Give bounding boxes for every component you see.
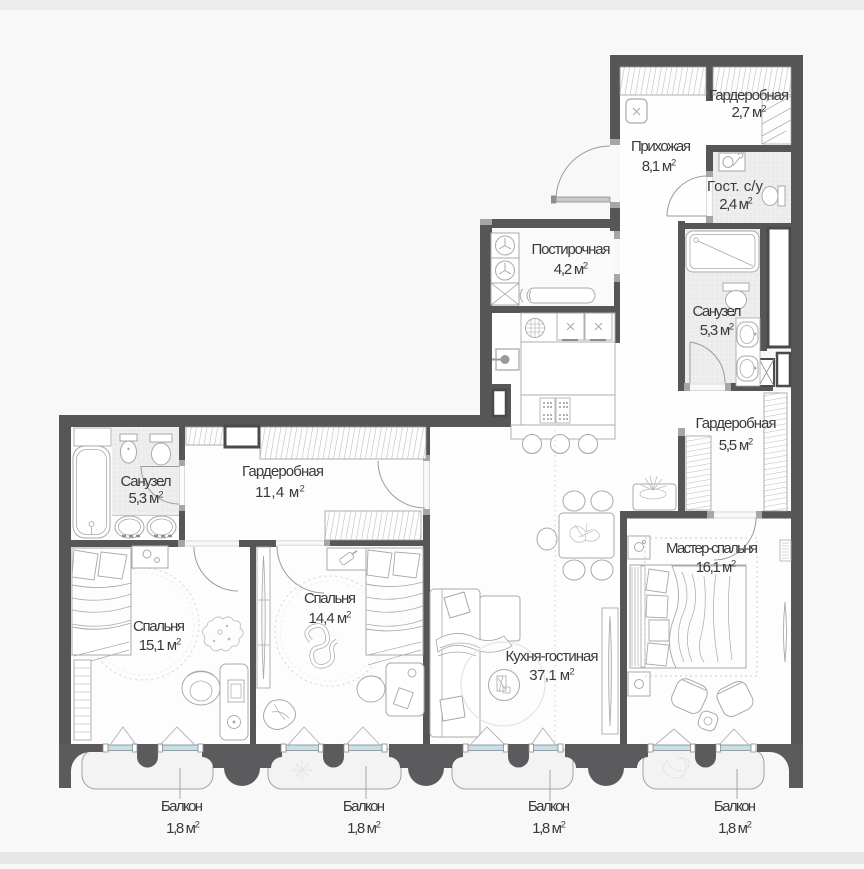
svg-text:1,8 м2: 1,8 м2 bbox=[166, 820, 200, 838]
svg-text:37,1 м2: 37,1 м2 bbox=[529, 667, 574, 685]
svg-text:Гардеробная: Гардеробная bbox=[696, 415, 777, 432]
svg-text:1,8 м2: 1,8 м2 bbox=[718, 820, 752, 838]
svg-text:Балкон: Балкон bbox=[528, 798, 570, 815]
svg-text:Спальня: Спальня bbox=[304, 590, 356, 607]
svg-text:Спальня: Спальня bbox=[133, 618, 185, 635]
svg-text:8,1 м2: 8,1 м2 bbox=[642, 158, 677, 176]
svg-text:Прихожая: Прихожая bbox=[631, 138, 691, 155]
svg-text:11,4 м2: 11,4 м2 bbox=[255, 484, 305, 502]
svg-text:5,3 м2: 5,3 м2 bbox=[129, 490, 164, 508]
svg-text:Мастер-спальня: Мастер-спальня bbox=[666, 540, 758, 557]
svg-text:5,5 м2: 5,5 м2 bbox=[719, 437, 754, 455]
svg-text:14,4 м2: 14,4 м2 bbox=[309, 610, 352, 628]
svg-text:1,8 м2: 1,8 м2 bbox=[532, 820, 566, 838]
svg-text:1,8 м2: 1,8 м2 bbox=[347, 820, 381, 838]
svg-text:2,4 м2: 2,4 м2 bbox=[719, 196, 753, 214]
svg-text:Гардеробная: Гардеробная bbox=[709, 87, 789, 104]
svg-text:Санузел: Санузел bbox=[693, 303, 742, 320]
svg-text:Балкон: Балкон bbox=[343, 798, 385, 815]
svg-text:16,1 м2: 16,1 м2 bbox=[696, 559, 737, 577]
svg-text:Постирочная: Постирочная bbox=[532, 241, 611, 258]
svg-text:2,7 м2: 2,7 м2 bbox=[732, 104, 767, 122]
svg-text:5,3 м2: 5,3 м2 bbox=[700, 322, 734, 340]
svg-text:Балкон: Балкон bbox=[161, 798, 203, 815]
svg-text:Санузел: Санузел bbox=[121, 473, 172, 490]
svg-text:Кухня-гостиная: Кухня-гостиная bbox=[506, 648, 599, 665]
svg-text:4,2 м2: 4,2 м2 bbox=[554, 261, 588, 279]
svg-text:Гардеробная: Гардеробная bbox=[242, 463, 324, 480]
svg-text:Балкон: Балкон bbox=[714, 798, 756, 815]
svg-text:Гост. с/у: Гост. с/у bbox=[707, 178, 764, 195]
svg-text:15,1 м2: 15,1 м2 bbox=[139, 637, 182, 655]
